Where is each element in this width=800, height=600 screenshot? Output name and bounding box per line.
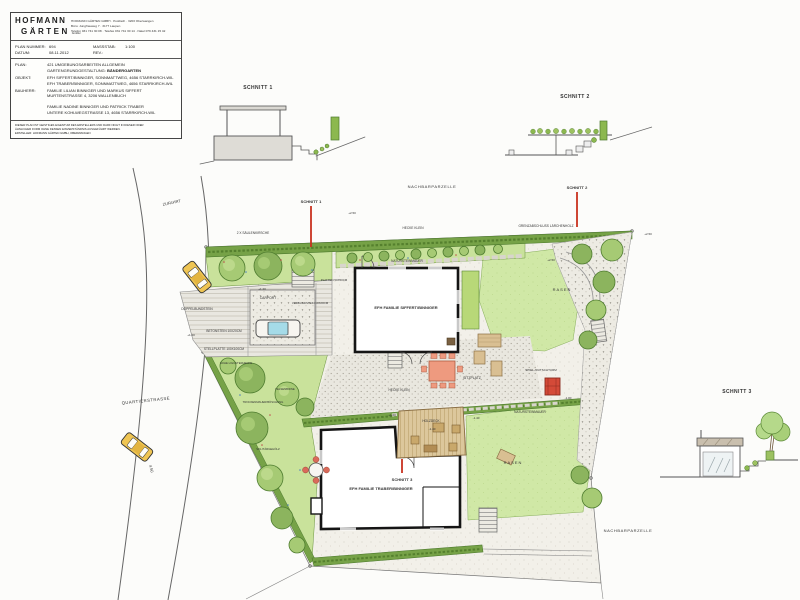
section-drawing-1 xyxy=(200,106,365,164)
copyright-note: DIESER PLAN IST GEISTIGES EIGENTUM DES E… xyxy=(11,121,181,139)
title-block: HOFMANN GÄRTENGmbH HOFMANN GÄRTEN GMBH ·… xyxy=(10,12,182,139)
object-line2: EFH TRABER/BINNIGER, SONNMATTWEG, 4656 S… xyxy=(47,81,173,86)
building-siffert xyxy=(355,256,458,364)
section1-title: SCHNITT 1 xyxy=(243,85,272,91)
plan-title: 421 UMGEBUNGSARBEITEN ALLGEMEIN GARTENGR… xyxy=(47,62,177,73)
section2-title: SCHNITT 2 xyxy=(560,94,589,100)
label-solitaer: SOLITÄRGEHÖLZ xyxy=(256,447,280,451)
client-label: BAUHERR: xyxy=(15,88,47,115)
logo-garten-text: GÄRTEN xyxy=(21,27,70,36)
label-hecke-klein-mid: HECKE KLEIN xyxy=(388,388,410,392)
label-efh-traber: EFH FAMILIE TRABER/BINNIGER xyxy=(349,486,412,491)
plan-label: PLAN: xyxy=(15,62,47,73)
elevation-mark: +2.50 xyxy=(547,258,555,262)
label-rasen-bottom: RASEN xyxy=(504,460,523,465)
stairs-lower-right xyxy=(479,508,497,532)
car-in-carport xyxy=(256,320,300,337)
elevation-mark: -1.40 xyxy=(429,427,436,431)
label-saeulenkirsche: 2 X SÄULENKIRSCHE xyxy=(237,231,270,235)
hedge-row-section xyxy=(531,128,607,134)
label-felsenbirne: FELSENBIRNE xyxy=(275,387,295,391)
label-hecke-klein-top: HECKE KLEIN xyxy=(402,226,424,230)
plan-title-line1: 421 UMGEBUNGSARBEITEN ALLGEMEIN xyxy=(47,62,125,67)
plan-number-value: 694 xyxy=(49,44,91,49)
label-sitzplatz: SITZPLATZ xyxy=(463,376,481,380)
label-road-dimension: 4.50 xyxy=(148,464,155,474)
client-row: BAUHERR: FAMILIE LILIAN BINNIGER UND MAR… xyxy=(15,88,177,115)
label-trockenmauer: TROCKENMAUER/BÖSCHUNG xyxy=(243,400,284,404)
lower-lawn xyxy=(466,401,590,520)
label-stellplatte: STELLPLATTE 100X100CM xyxy=(204,347,245,351)
elevation-mark: +1.20 xyxy=(187,333,195,337)
object-line1: EFH SIFFERT/BINNIGER, SONNMATTWEG, 4656 … xyxy=(47,75,173,80)
section-tree xyxy=(756,412,790,441)
company-address: HOFMANN GÄRTEN GMBH · Postfach · 3203 Ob… xyxy=(71,16,177,38)
wood-deck xyxy=(397,407,466,458)
date-label: DATUM: xyxy=(15,50,47,55)
label-natursteinmauer-mid: NATURSTEINMAUER xyxy=(514,410,546,414)
road xyxy=(118,168,209,600)
elevation-mark: +2.50 xyxy=(644,232,652,236)
label-platten: PLATTEN 50X50CM xyxy=(321,278,348,282)
grass-strip-east xyxy=(462,271,479,329)
logo-line1: HOFMANN xyxy=(15,16,67,27)
garden-style-label: GARTENGRUNDGESTALTUNG: xyxy=(47,68,106,73)
date-value: 08.11.2012 xyxy=(49,50,91,55)
label-nachbarparzelle-top: NACHBARPARZELLE xyxy=(408,184,457,189)
label-schnitt2-marker: SCHNITT 2 xyxy=(567,185,588,190)
elevation-mark: -1.00 xyxy=(565,396,572,400)
copyright-line: ERSTELLER: HOFMANN GÄRTEN GMBH, OBERWANG… xyxy=(15,131,177,135)
label-schnitt1-marker: SCHNITT 1 xyxy=(301,199,322,204)
section-drawing-2 xyxy=(505,121,652,155)
plan-row: PLAN: 421 UMGEBUNGSARBEITEN ALLGEMEIN GA… xyxy=(15,62,177,73)
client-value: FAMILIE LILIAN BINNIGER UND MARKUS SIFFE… xyxy=(47,88,177,115)
rev-value xyxy=(125,50,177,55)
label-doppelbundstein: DOPPELBUNDSTEIN xyxy=(181,307,213,311)
elevation-mark: -1.40 xyxy=(473,416,480,420)
garden-style-value: BÄNDERGARTEN xyxy=(107,68,141,73)
play-tower xyxy=(545,378,560,395)
elevation-mark: +2.50 xyxy=(348,211,356,215)
address-line: Telefon 031 741 30 08 · Telefax 031 741 … xyxy=(71,29,177,34)
label-betonstein: BETONSTEIN 10X20CM xyxy=(206,329,242,333)
logo-line2: GÄRTENGmbH xyxy=(21,27,67,38)
label-holzdeck: HOLZDECK xyxy=(422,419,440,423)
plan-number-label: PLAN NUMMER: xyxy=(15,44,47,49)
scale-label: MASSSTAB: xyxy=(93,44,123,49)
plan-meta-fields: PLAN NUMMER: 694 MASSSTAB: 1:100 DATUM: … xyxy=(11,41,181,60)
object-value: EFH SIFFERT/BINNIGER, SONNMATTWEG, 4656 … xyxy=(47,75,177,86)
elevation-mark: +1.20 xyxy=(258,287,266,291)
company-logo: HOFMANN GÄRTENGmbH xyxy=(15,16,67,38)
label-natursteinmauer-top: NATURSTEINMAUER xyxy=(391,259,423,263)
label-liguster: HOHE LIGUSTERHECKE xyxy=(220,361,253,365)
client-line3: FAMILIE NADINE BINNIGER UND PATRICK TRAB… xyxy=(47,104,144,109)
client-line1: FAMILIE LILIAN BINNIGER UND MARKUS SIFFE… xyxy=(47,88,142,93)
section3-title: SCHNITT 3 xyxy=(722,389,751,395)
title-block-header: HOFMANN GÄRTENGmbH HOFMANN GÄRTEN GMBH ·… xyxy=(11,13,181,41)
scale-value: 1:100 xyxy=(125,44,177,49)
client-line2: MURTENSTRASSE 4, 3206 WALLENBUCH xyxy=(47,93,126,98)
object-row: OBJEKT: EFH SIFFERT/BINNIGER, SONNMATTWE… xyxy=(15,75,177,86)
label-efh-siffert: EFH FAMILIE SIFFERT/BINNIGER xyxy=(374,305,437,310)
section-drawing-3 xyxy=(660,412,798,477)
plan-description-block: PLAN: 421 UMGEBUNGSARBEITEN ALLGEMEIN GA… xyxy=(11,59,181,121)
car-yellow-bottom xyxy=(120,432,154,463)
object-label: OBJEKT: xyxy=(15,75,47,86)
label-schnitt3-marker: SCHNITT 3 xyxy=(392,477,413,482)
label-spielturm: SPIEL-/RUTSCHTURM xyxy=(525,368,557,372)
label-verbundstein: VERBUNDSTEIN 10X20CM xyxy=(292,301,329,305)
label-quartierstrasse: QUARTIERSTRASSE xyxy=(121,395,170,405)
label-rasen-top: RASEN xyxy=(553,287,572,292)
client-line4: UNTERE KOHLWEGSTRASSE 13, 4656 STARRKIRC… xyxy=(47,110,155,115)
elevation-mark: +1.00 xyxy=(388,413,396,417)
scanned-garden-plan-page: HOFMANN GÄRTENGmbH HOFMANN GÄRTEN GMBH ·… xyxy=(0,0,800,600)
label-grenzabschluss: GRENZABSCHLUSS LÄRCHENHOLZ xyxy=(518,224,573,228)
label-nachbarparzelle-bottom: NACHBARPARZELLE xyxy=(604,528,653,533)
grill xyxy=(447,338,455,345)
label-zufahrt: ZUFAHRT xyxy=(162,198,182,207)
label-carport: CARPORT xyxy=(260,296,277,300)
rev-label: REV.: xyxy=(93,50,123,55)
